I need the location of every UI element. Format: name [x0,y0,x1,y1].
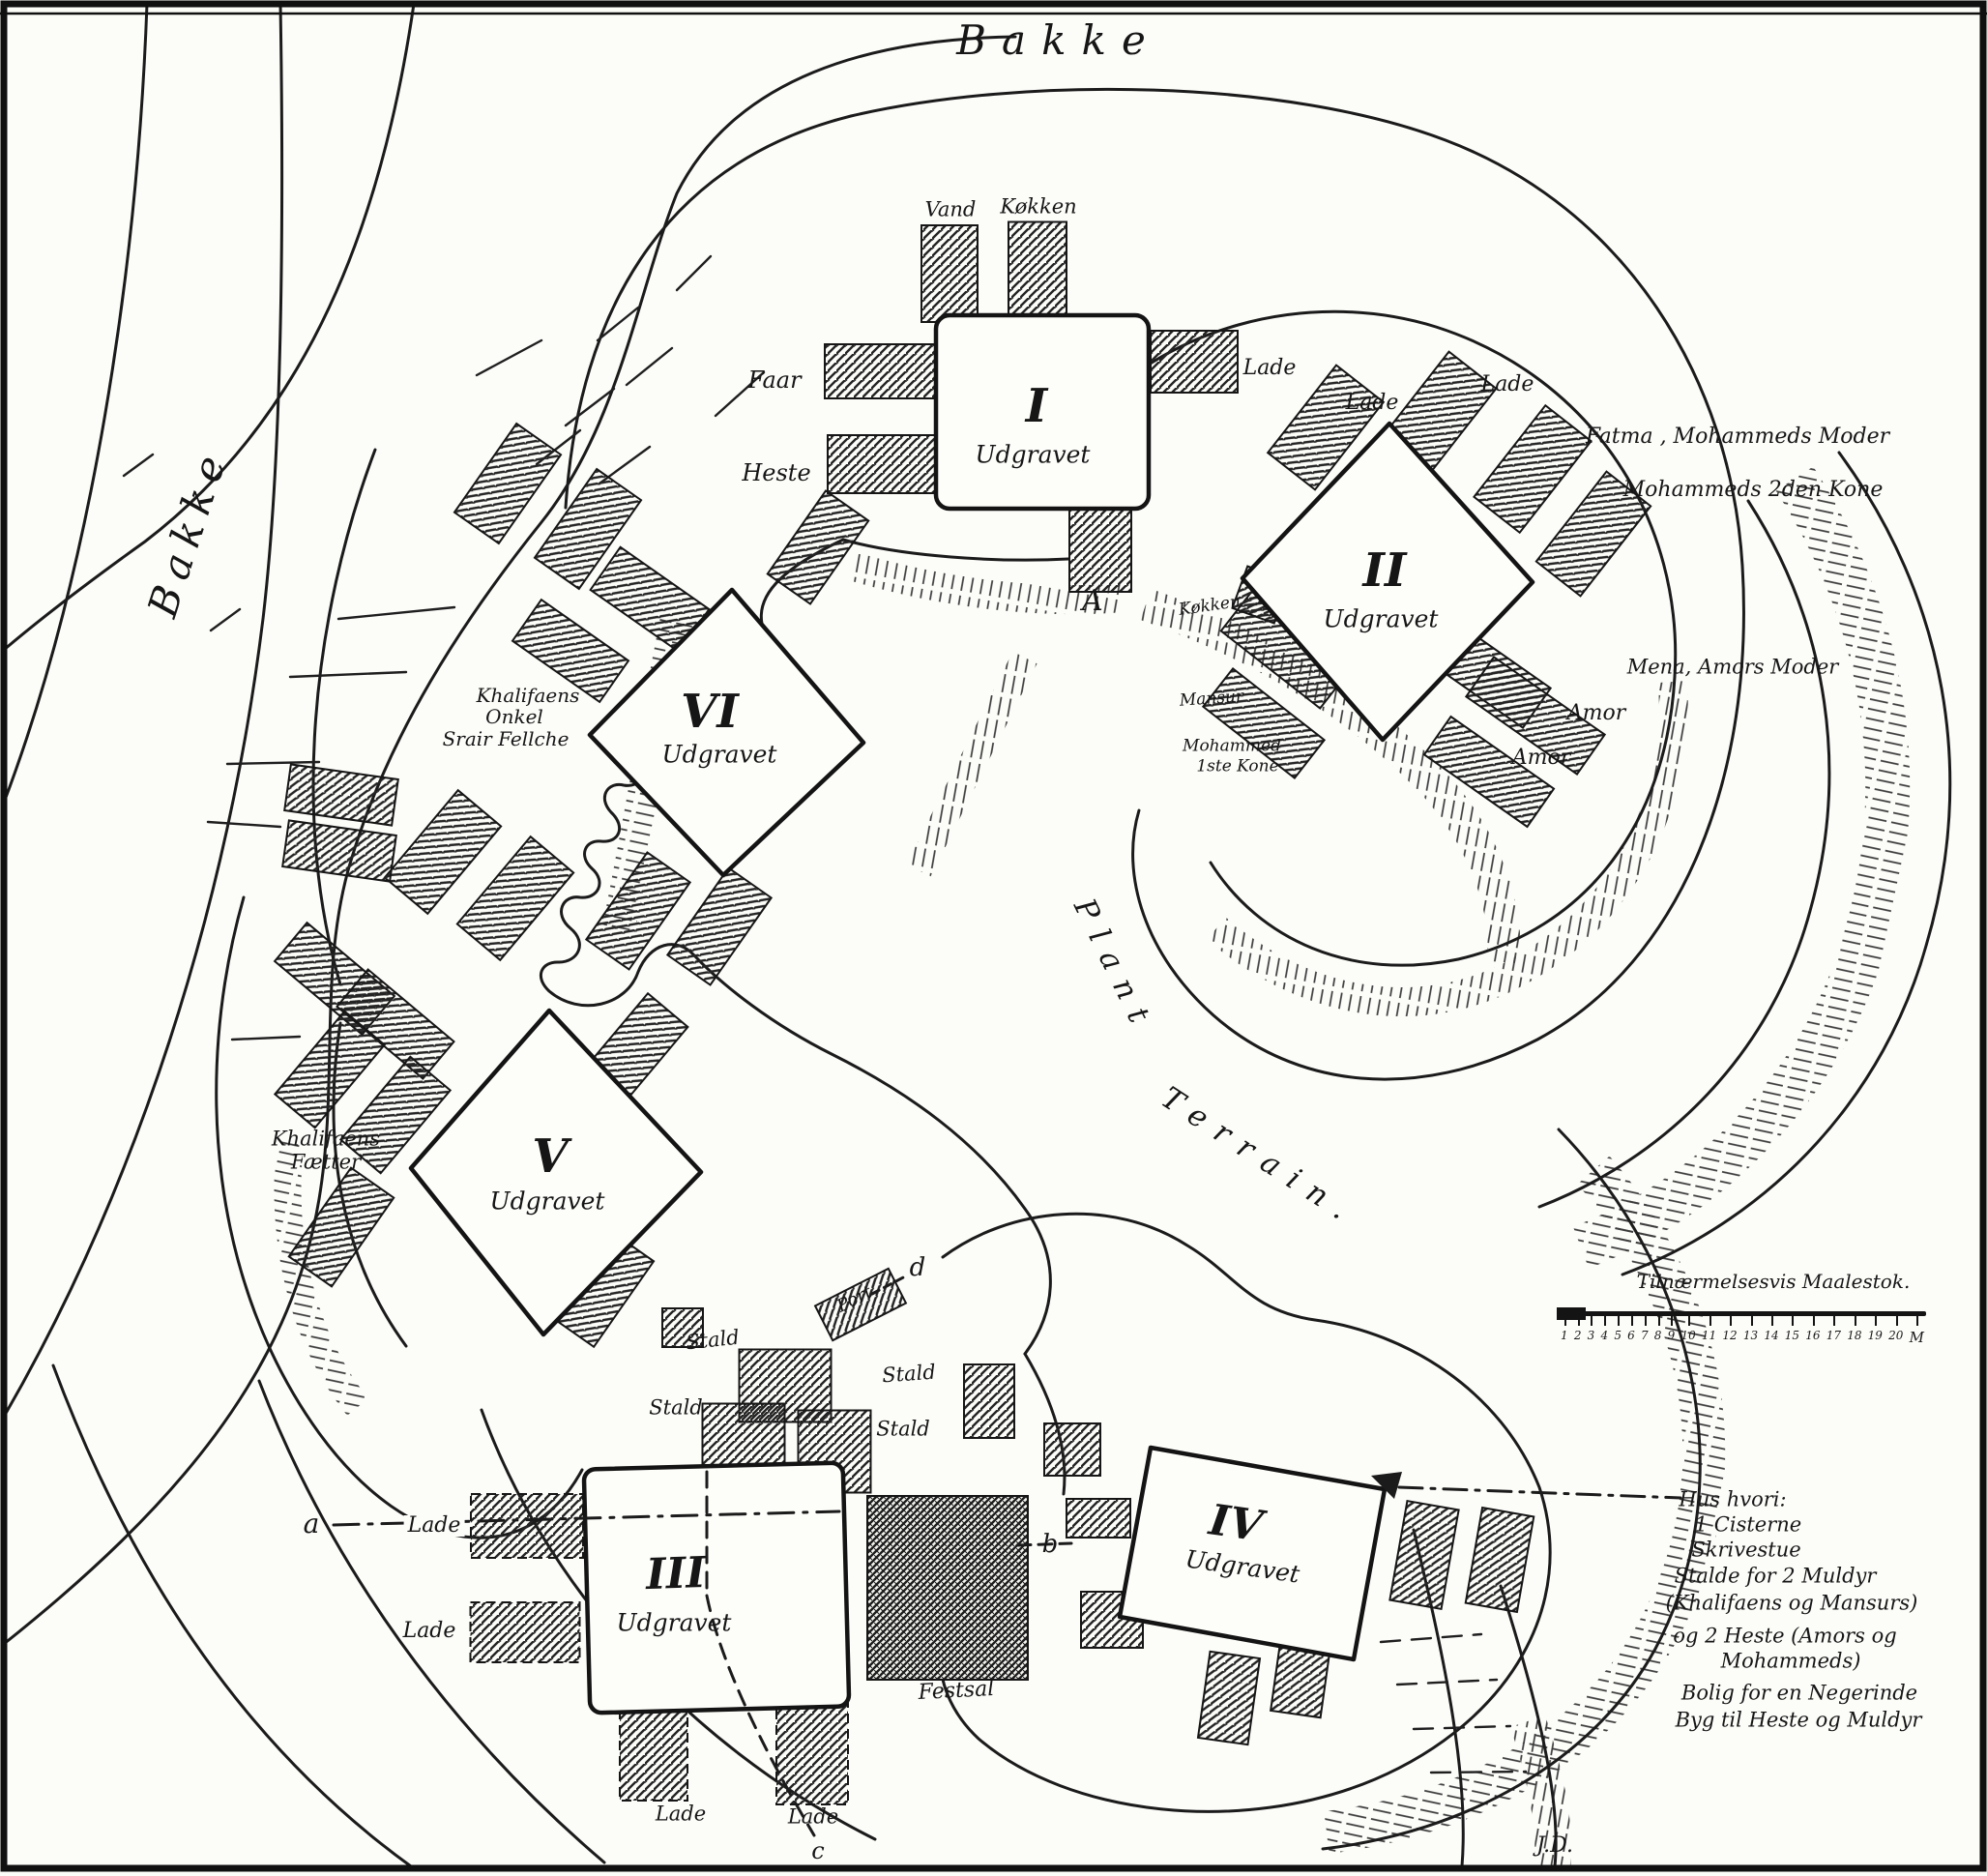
building-I-numeral: I [1026,383,1047,429]
scale-ticks: 1234567891011121314151617181920M [1559,1318,1926,1346]
room-label-amor-1: Amor [1567,703,1626,724]
scale-bar: 1234567891011121314151617181920M [1559,1311,1926,1346]
room-label-stald-3: Stald [882,1363,937,1387]
owner-label-onkel: Onkel [485,707,543,726]
scale-tick: 13 [1743,1318,1758,1346]
scale-tick: 6 [1627,1318,1635,1346]
scale-tick: 8 [1654,1318,1662,1346]
owner-label-khalifaens-1: Khalifaens [477,686,580,705]
scale-unit: M [1910,1318,1924,1346]
scale-tick: 11 [1702,1318,1716,1346]
scale-tick: 16 [1805,1318,1820,1346]
room-label-stald-1: Stald [685,1328,740,1354]
note-line-mohammeds: Mohammeds) [1721,1652,1861,1672]
owner-label-srair-fellche: Srair Fellche [443,729,570,748]
note-line-cisterne: 1 Cisterne [1695,1515,1801,1536]
scale-tick: 15 [1785,1318,1799,1346]
room-label-mansur: Mansur [1179,689,1243,710]
scale-tick: 17 [1826,1318,1841,1346]
room-label-lade-1: Lade [1243,358,1297,379]
owner-label-khalifaens-2: Khalifaens [272,1129,380,1150]
building-II-numeral: II [1363,547,1407,594]
marker-A: A [1082,587,1103,616]
marker-d: d [910,1255,926,1280]
room-label-kokken-1: Køkken [1000,197,1076,218]
scale-tick: 3 [1588,1318,1595,1346]
room-label-lade-7: Lade [788,1807,838,1828]
room-label-mohammeds-2-kone: Mohammeds 2den Kone [1623,480,1884,501]
room-label-lade-6: Lade [656,1804,706,1825]
note-line-bolig: Bolig for en Negerinde [1681,1684,1917,1704]
scale-tick: 2 [1574,1318,1582,1346]
room-label-mohammed: Mohammed [1183,739,1281,755]
room-label-mena: Mena, Amors Moder [1627,658,1839,678]
room-label-fatma: Fatma , Mohammeds Moder [1586,426,1889,448]
room-label-lade-5: Lade [403,1621,456,1642]
building-III-outline [584,1463,850,1714]
note-line-heste-amors: og 2 Heste (Amors og [1673,1627,1896,1647]
building-II-status: Udgravet [1324,607,1439,631]
scale-tick: 12 [1722,1318,1737,1346]
room-label-1ste-kone: 1ste Kone [1196,759,1278,776]
room-label-faar: Faar [747,368,801,392]
building-III-status: Udgravet [617,1611,732,1635]
note-line-stalde: Stalde for 2 Muldyr [1675,1567,1877,1587]
building-IV-numeral: IV [1207,1499,1265,1548]
scale-tick: 19 [1868,1318,1883,1346]
scale-tick: 14 [1764,1318,1778,1346]
note-line-khalifaens-mansurs: (Khalifaens og Mansurs) [1666,1594,1918,1614]
note-line-skrivestue: Skrivestue [1691,1540,1800,1561]
hill-label-top: Bakke [956,20,1161,61]
room-label-lade-2: Lade [1346,393,1399,414]
marker-a: a [304,1510,320,1538]
room-label-vand: Vand [925,200,977,220]
room-label-amor-2: Amor [1512,747,1571,769]
note-line-byg: Byg til Heste og Muldyr [1676,1711,1922,1731]
scale-tick: 18 [1847,1318,1861,1346]
note-line-hus-hvori: Hus hvori: [1679,1490,1786,1510]
building-V-numeral: V [532,1133,568,1180]
room-label-stald-2: Stald [649,1398,703,1419]
scale-tick: 20 [1888,1318,1903,1346]
scale-tick: 9 [1668,1318,1676,1346]
building-III-numeral: III [645,1552,706,1597]
marker-b: b [1042,1532,1059,1557]
marker-c: c [811,1839,824,1862]
room-label-festsal: Festsal [918,1679,995,1704]
site-plan-map: Bakke Bakke Vand Køkken Faar Heste Lade … [0,0,1987,1876]
building-VI-status: Udgravet [662,743,777,767]
owner-label-faetter: Fætter [291,1153,361,1173]
signature: J.D. [1536,1835,1573,1857]
scale-tick: 5 [1614,1318,1622,1346]
scale-tick: 10 [1680,1318,1695,1346]
scale-bar-line [1559,1311,1926,1316]
scale-tick: 1 [1561,1318,1568,1346]
scale-title: Tilnærmelsesvis Maalestok. [1637,1272,1911,1291]
room-label-lade-3: Lade [1481,374,1534,396]
room-label-heste: Heste [742,461,810,484]
building-VI-numeral: VI [681,689,739,735]
room-label-stald-4: Stald [876,1420,930,1440]
building-V-status: Udgravet [490,1189,605,1214]
scale-tick: 4 [1600,1318,1608,1346]
scale-tick: 7 [1641,1318,1649,1346]
building-I-status: Udgravet [976,443,1091,467]
room-label-lade-4: Lade [404,1515,465,1537]
